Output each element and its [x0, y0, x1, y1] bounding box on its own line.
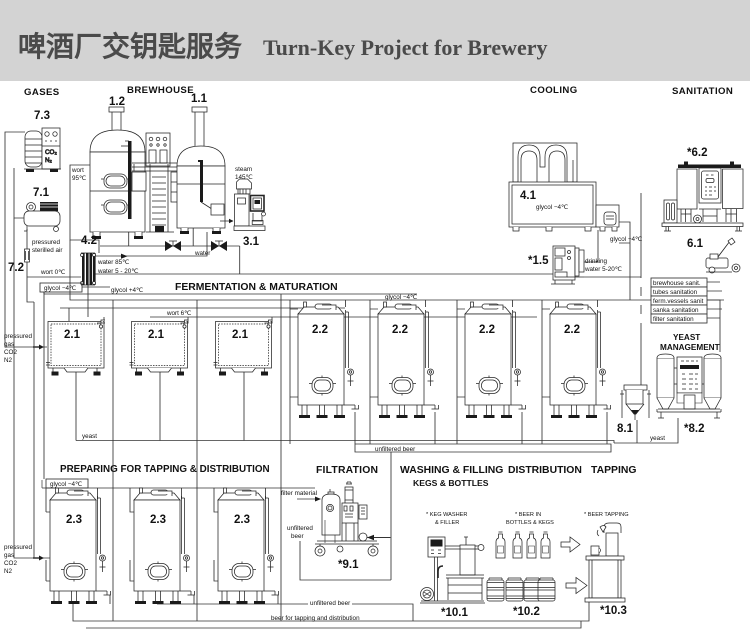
svg-text:2.2: 2.2	[392, 324, 408, 336]
svg-text:*1.5: *1.5	[528, 255, 549, 267]
svg-text:sterilled air: sterilled air	[32, 247, 62, 254]
svg-text:*6.2: *6.2	[687, 147, 707, 159]
svg-text:beer for tapping and distribut: beer for tapping and distribution	[271, 615, 360, 622]
svg-text:pressured: pressured	[4, 333, 32, 340]
svg-text:FILTRATION: FILTRATION	[316, 465, 378, 476]
svg-text:* KEG WASHER: * KEG WASHER	[426, 512, 467, 518]
svg-text:* BEER TAPPING: * BEER TAPPING	[584, 512, 629, 518]
svg-text:YEAST: YEAST	[673, 333, 700, 342]
svg-text:*8.2: *8.2	[684, 423, 704, 435]
svg-text:2.1: 2.1	[64, 329, 81, 341]
svg-text:95℃: 95℃	[72, 175, 86, 182]
svg-text:N₂: N₂	[45, 157, 53, 164]
svg-text:wort 0℃: wort 0℃	[40, 269, 65, 276]
svg-text:MANAGEMENT: MANAGEMENT	[660, 343, 720, 352]
svg-text:steam: steam	[235, 166, 252, 173]
svg-text:COOLING: COOLING	[530, 85, 578, 96]
svg-text:2.1: 2.1	[232, 329, 249, 341]
svg-text:1.1: 1.1	[191, 93, 208, 105]
svg-text:glycol −4℃: glycol −4℃	[44, 285, 76, 292]
svg-text:TAPPING: TAPPING	[591, 465, 636, 476]
svg-text:4.2: 4.2	[81, 235, 97, 247]
svg-text:BREWHOUSE: BREWHOUSE	[127, 85, 194, 96]
svg-text:yeast: yeast	[82, 433, 97, 440]
svg-text:beer: beer	[291, 533, 304, 540]
svg-text:CO₂: CO₂	[45, 149, 57, 156]
svg-text:PREPARING FOR TAPPING & DISTRI: PREPARING FOR TAPPING & DISTRIBUTION	[60, 464, 270, 475]
svg-text:brewhouse sanit.: brewhouse sanit.	[653, 280, 701, 287]
svg-text:gas: gas	[4, 341, 14, 348]
svg-text:pressured: pressured	[4, 544, 32, 551]
svg-text:SANITATION: SANITATION	[672, 86, 733, 97]
svg-text:glycol −4℃: glycol −4℃	[50, 481, 82, 488]
svg-text:6.1: 6.1	[687, 238, 704, 250]
svg-text:yeast: yeast	[650, 435, 665, 442]
svg-text:N2: N2	[4, 357, 13, 364]
svg-text:FERMENTATION & MATURATION: FERMENTATION & MATURATION	[175, 282, 338, 293]
svg-text:CO2: CO2	[4, 349, 17, 356]
svg-text:wort: wort	[71, 167, 84, 174]
svg-text:pressured: pressured	[32, 239, 60, 246]
svg-text:*10.3: *10.3	[600, 605, 627, 617]
svg-text:CO2: CO2	[4, 560, 17, 567]
svg-text:glycol −4℃: glycol −4℃	[610, 236, 642, 243]
svg-text:tubes sanitation: tubes sanitation	[653, 289, 698, 296]
svg-text:ferm.vessels sanit: ferm.vessels sanit	[653, 298, 704, 305]
svg-text:glycol +4℃: glycol +4℃	[111, 287, 143, 294]
svg-text:3.1: 3.1	[243, 236, 260, 248]
svg-text:2.2: 2.2	[564, 324, 580, 336]
svg-text:2.3: 2.3	[234, 514, 250, 526]
svg-text:Turn-Key Project for Brewery: Turn-Key Project for Brewery	[263, 35, 548, 60]
svg-text:7.3: 7.3	[34, 110, 50, 122]
svg-text:water 5 - 20℃: water 5 - 20℃	[97, 268, 138, 275]
svg-text:2.3: 2.3	[66, 514, 82, 526]
svg-text:*10.1: *10.1	[441, 607, 468, 619]
svg-text:drinking: drinking	[585, 258, 608, 265]
svg-text:8.1: 8.1	[617, 423, 634, 435]
svg-text:water: water	[194, 250, 210, 257]
svg-text:4.1: 4.1	[520, 190, 537, 202]
svg-text:wort 6℃: wort 6℃	[166, 310, 191, 317]
svg-text:gas: gas	[4, 552, 14, 559]
svg-text:1.2: 1.2	[109, 96, 125, 108]
svg-text:DISTRIBUTION: DISTRIBUTION	[508, 465, 582, 476]
svg-text:2.1: 2.1	[148, 329, 165, 341]
svg-text:2.2: 2.2	[312, 324, 328, 336]
svg-text:filter material: filter material	[281, 490, 317, 497]
svg-text:unfiltered beer: unfiltered beer	[375, 446, 415, 453]
svg-text:2.2: 2.2	[479, 324, 495, 336]
svg-text:unfiltered: unfiltered	[287, 525, 313, 532]
svg-text:*9.1: *9.1	[338, 559, 359, 571]
svg-text:7.1: 7.1	[33, 187, 50, 199]
svg-text:145℃: 145℃	[235, 174, 253, 181]
svg-text:& FILLER: & FILLER	[435, 520, 459, 526]
svg-text:glycol −4℃: glycol −4℃	[385, 294, 417, 301]
svg-text:啤酒厂交钥匙服务: 啤酒厂交钥匙服务	[18, 30, 242, 62]
svg-text:sanka sanitation: sanka sanitation	[653, 307, 699, 314]
svg-text:2.3: 2.3	[150, 514, 166, 526]
svg-text:GASES: GASES	[24, 87, 60, 98]
svg-text:KEGS & BOTTLES: KEGS & BOTTLES	[413, 478, 489, 488]
svg-text:unfiltered beer: unfiltered beer	[310, 600, 350, 607]
svg-text:* BEER IN: * BEER IN	[515, 512, 541, 518]
svg-text:*10.2: *10.2	[513, 606, 540, 618]
svg-text:glycol −4℃: glycol −4℃	[536, 204, 568, 211]
svg-text:BOTTLES & KEGS: BOTTLES & KEGS	[506, 520, 554, 526]
svg-text:N2: N2	[4, 568, 13, 575]
svg-text:7.2: 7.2	[8, 262, 24, 274]
svg-text:filter sanitation: filter sanitation	[653, 316, 694, 323]
svg-text:WASHING & FILLING: WASHING & FILLING	[400, 465, 503, 476]
svg-text:water 5-20℃: water 5-20℃	[584, 266, 622, 273]
svg-text:water 85℃: water 85℃	[97, 259, 129, 266]
